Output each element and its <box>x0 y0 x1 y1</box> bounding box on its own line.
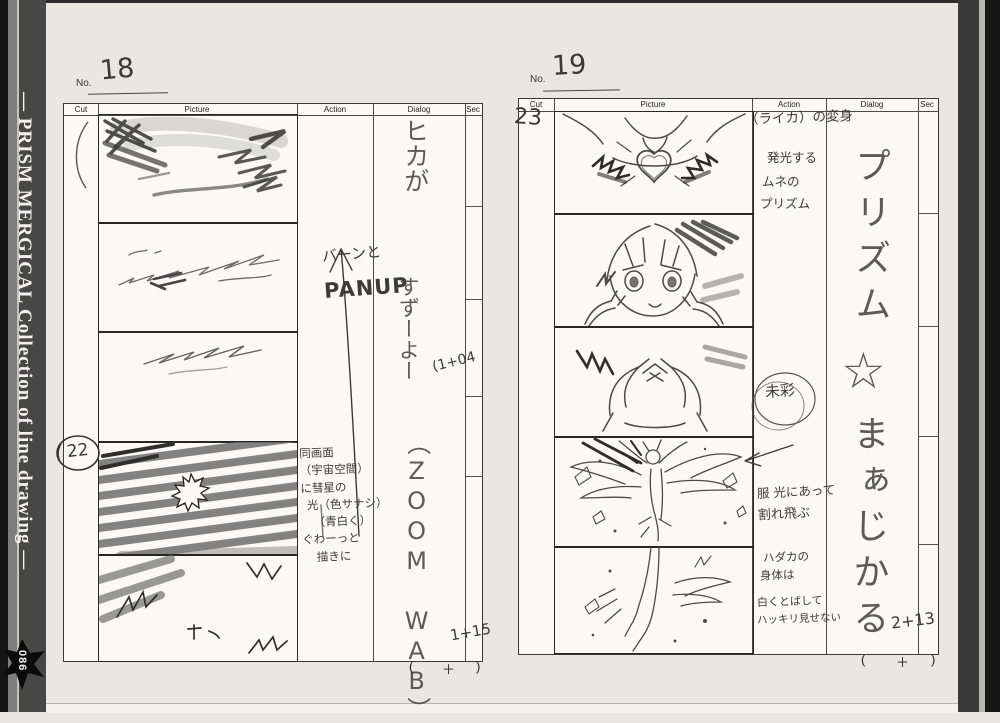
page-number-19: 19 <box>551 49 587 82</box>
grid-line <box>918 99 919 654</box>
action-note-19: 服 光にあって <box>757 483 836 501</box>
sec-divider <box>918 213 938 214</box>
sec-divider <box>918 326 938 327</box>
no-label-18: No. <box>76 78 92 89</box>
sketch-faint-cloud <box>99 332 297 442</box>
sec-timing-18-1: (1+04 <box>431 349 478 375</box>
sec-divider <box>918 544 938 545</box>
dialog-19-line2: まぁじかる <box>847 415 888 655</box>
panel-19-1 <box>554 111 754 215</box>
action-note-19: 身体は <box>760 568 795 582</box>
panel-18-1 <box>98 114 298 224</box>
grid-line <box>826 99 827 654</box>
dialog-18-line1: ヒカが <box>400 118 429 228</box>
no-label-19: No. <box>530 74 546 85</box>
header-picture-19: Picture <box>641 100 666 109</box>
header-sec-19: Sec <box>920 100 934 109</box>
header-action-18: Action <box>324 105 346 114</box>
sec-divider <box>465 476 482 477</box>
total-close-18: ) <box>476 659 480 674</box>
header-cut-18: Cut <box>75 105 87 114</box>
action-note-19: 割れ飛ぶ <box>758 507 811 525</box>
pointer-arrow-sketch <box>735 439 797 469</box>
book-right-page-edge <box>958 0 1000 712</box>
total-plus-19: ＋ <box>896 652 909 671</box>
sketch-heart-hands <box>555 327 753 437</box>
sketch-fairy-legs-shards <box>555 547 753 653</box>
action-note-19: プリズム <box>760 197 810 211</box>
page-number-18: 18 <box>99 53 136 87</box>
dialog-19-star: ☆ <box>841 343 886 401</box>
action-notes-18: 同画面 （宇宙空間） に彗星の 光（色サナシ） （青白く） ぐわーっと 描きに <box>299 443 390 567</box>
sec-timing-19-1: 2+13 <box>890 609 936 633</box>
panel-18-4 <box>98 441 298 556</box>
sec-divider <box>465 206 482 207</box>
cut-number-badge-22: 22 <box>55 434 101 472</box>
sketch-streak-tail <box>99 555 297 661</box>
header-sec-18: Sec <box>466 105 480 114</box>
dialog-18-line3: （ZOOM WAB） <box>402 431 430 663</box>
panel-19-5 <box>554 546 754 654</box>
cut-bracket-sketch <box>66 118 94 193</box>
no-underline-18 <box>88 92 168 94</box>
action-note-19: ムネの <box>762 175 800 189</box>
spine-title: — PRISM MERGICAL Collection of line draw… <box>13 92 35 652</box>
total-open-19: ( <box>861 652 865 667</box>
uncolored-stamp: 未彩 <box>749 371 817 433</box>
sec-divider <box>465 396 482 397</box>
sketch-fairy-wings <box>555 437 753 547</box>
sketch-comet-sky <box>99 442 297 555</box>
panel-19-4 <box>554 436 754 548</box>
total-plus-18: ＋ <box>442 659 455 678</box>
sec-timing-18-2: 1+15 <box>449 621 493 645</box>
action-note-19: ハダカの <box>763 550 809 565</box>
action-headnote-19: （ライカ）の変身 <box>745 109 853 128</box>
panel-18-5 <box>98 554 298 662</box>
sketch-girl-face <box>555 214 753 327</box>
panel-18-2 <box>98 222 298 333</box>
action-note-19: 白くとばして <box>757 595 823 610</box>
book-spine: — PRISM MERGICAL Collection of line draw… <box>0 0 46 712</box>
header-picture-18: Picture <box>185 105 210 114</box>
storyboard-sheet-18: Cut Picture Action Dialog Sec <box>63 103 483 662</box>
sec-divider <box>465 299 482 300</box>
dialog-19-line1: プリズム <box>849 147 890 352</box>
action-note-19: 発光する <box>767 151 817 165</box>
sketch-light-clouds <box>99 223 297 332</box>
header-action-19: Action <box>778 100 800 109</box>
sec-divider <box>918 436 938 437</box>
panel-19-3 <box>554 326 754 438</box>
dialog-18-line2: すずーよー <box>396 276 420 436</box>
action-note-19: ハッキリ見せない <box>757 612 841 627</box>
scan-top-edge <box>0 0 1000 3</box>
spine-page-number: 086 <box>16 650 28 671</box>
cut-number-19: 23 <box>513 104 543 131</box>
no-underline-19 <box>543 89 620 91</box>
scanned-book-page: { "spine": { "title": "— PRISM MERGICAL … <box>0 0 1000 712</box>
header-dialog-19: Dialog <box>861 100 884 109</box>
panel-19-2 <box>554 213 754 328</box>
sketch-dark-storm-clouds <box>99 115 297 223</box>
panel-18-3 <box>98 331 298 443</box>
grid-line <box>465 104 466 661</box>
storyboard-sheet-19: Cut Picture Action Dialog Sec 23 <box>518 98 939 655</box>
total-open-18: ( <box>409 659 413 674</box>
header-dialog-18: Dialog <box>408 105 431 114</box>
total-close-19: ) <box>931 652 935 667</box>
sketch-heart-pendant <box>555 112 753 214</box>
